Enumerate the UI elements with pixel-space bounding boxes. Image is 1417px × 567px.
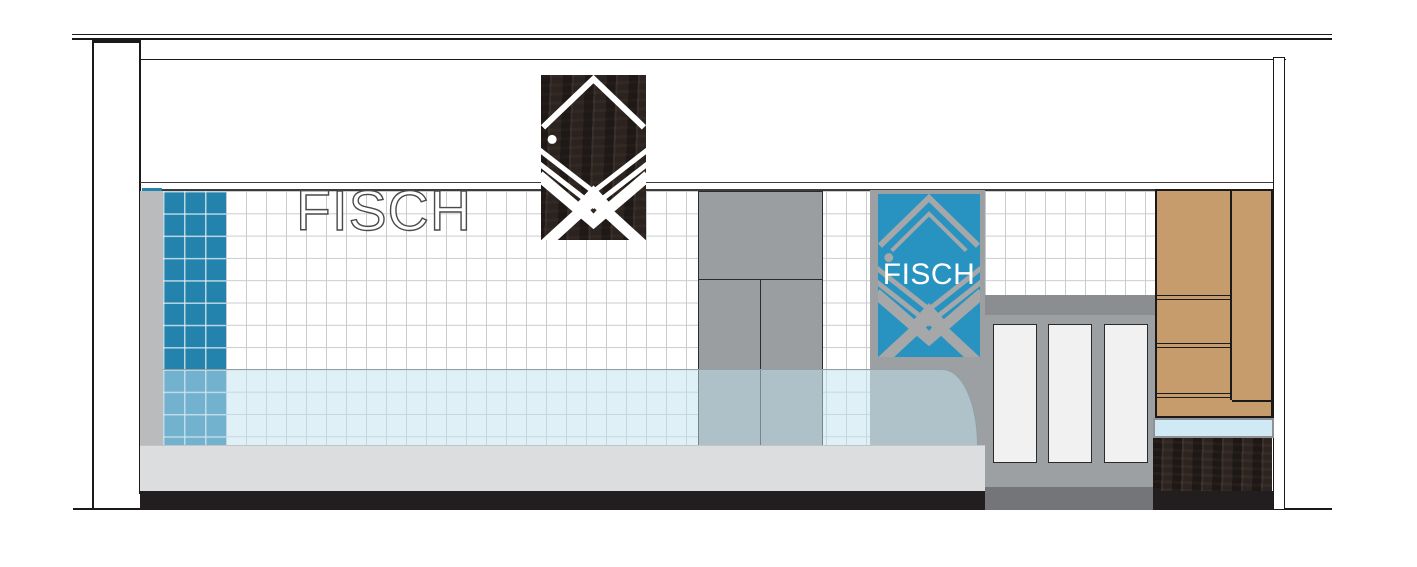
cabinet-door-bottom-line [1232,400,1273,402]
counter-base [140,445,985,491]
cabinet-shelf-line [1157,299,1230,300]
panel-sign-text: FISCH [878,260,980,290]
door-transom-panel [698,191,823,280]
fish-eye-dot [548,135,557,144]
ceiling-slab-line-upper [72,34,1332,35]
tile-band-top-line-blue-segment [142,188,162,191]
wood-cabinet [1155,189,1273,418]
counter-unit-panel [1104,324,1148,463]
dark-wood-base-drawers [1153,438,1272,491]
counter-unit-top-band [985,295,1155,315]
ceiling-slab-line-lower [72,38,1332,40]
cabinet-divider [1230,191,1232,400]
counter-unit-panel [993,324,1037,463]
cabinet-shelf-line [1157,347,1230,348]
interior-ceiling-line [140,59,1286,60]
counter-unit-panel [1048,324,1092,463]
cabinet-shelf-line [1157,295,1230,296]
kick-strip-right [1153,491,1273,510]
cabinet-shelf-line [1157,393,1230,394]
storefront-elevation-drawing: FISCH FISCH [0,0,1417,567]
fish-logo-dark-panel [541,75,646,240]
wall-sign-text: FISCH [296,183,472,240]
left-wall-outer-line [92,38,94,509]
counter-unit-base-band [985,487,1155,510]
fish-logo-blue-panel: FISCH [878,194,980,357]
fish-logo-icon [541,75,646,240]
cabinet-shelf-line [1157,343,1230,344]
white-tile-wall-right [985,191,1155,295]
kick-strip [140,491,986,510]
glass-display-counter [163,369,978,445]
cabinet-shelf-line [1157,397,1230,398]
glass-shelf-strip [1153,418,1274,438]
left-pilaster-strip [140,191,163,445]
ceiling-beam [92,38,140,43]
right-wall-column [1273,57,1285,509]
